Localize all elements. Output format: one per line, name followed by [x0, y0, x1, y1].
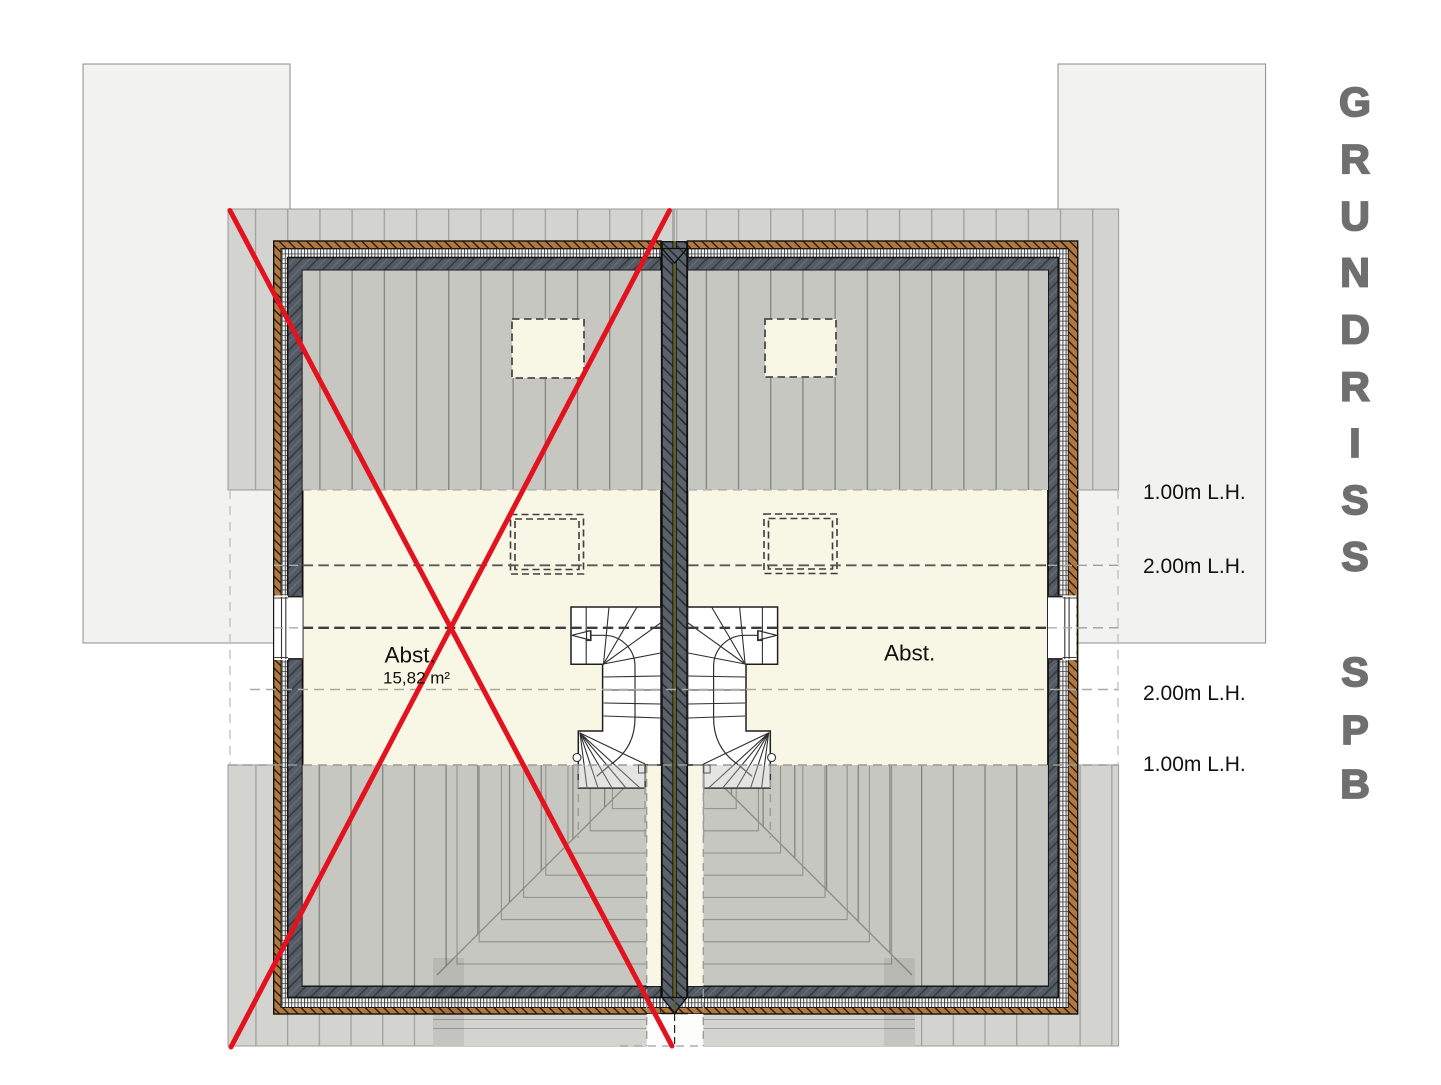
svg-text:1.00m L.H.: 1.00m L.H. — [1143, 481, 1246, 504]
svg-text:B: B — [1340, 761, 1370, 807]
svg-text:G: G — [1339, 79, 1371, 125]
svg-text:Abst.: Abst. — [884, 641, 935, 666]
svg-text:2.00m L.H.: 2.00m L.H. — [1143, 682, 1246, 705]
svg-text:P: P — [1341, 707, 1368, 753]
svg-text:D: D — [1340, 306, 1370, 352]
svg-text:15,82 m²: 15,82 m² — [383, 669, 450, 688]
svg-text:S: S — [1341, 649, 1368, 695]
svg-text:S: S — [1341, 534, 1368, 580]
svg-text:S: S — [1341, 477, 1368, 523]
svg-text:R: R — [1340, 363, 1370, 409]
svg-text:R: R — [1340, 136, 1370, 182]
svg-text:2.00m L.H.: 2.00m L.H. — [1143, 555, 1246, 578]
svg-text:I: I — [1349, 420, 1360, 466]
svg-text:N: N — [1340, 250, 1370, 296]
svg-text:Abst.: Abst. — [385, 643, 436, 668]
svg-text:U: U — [1340, 193, 1370, 239]
svg-text:1.00m L.H.: 1.00m L.H. — [1143, 753, 1246, 776]
